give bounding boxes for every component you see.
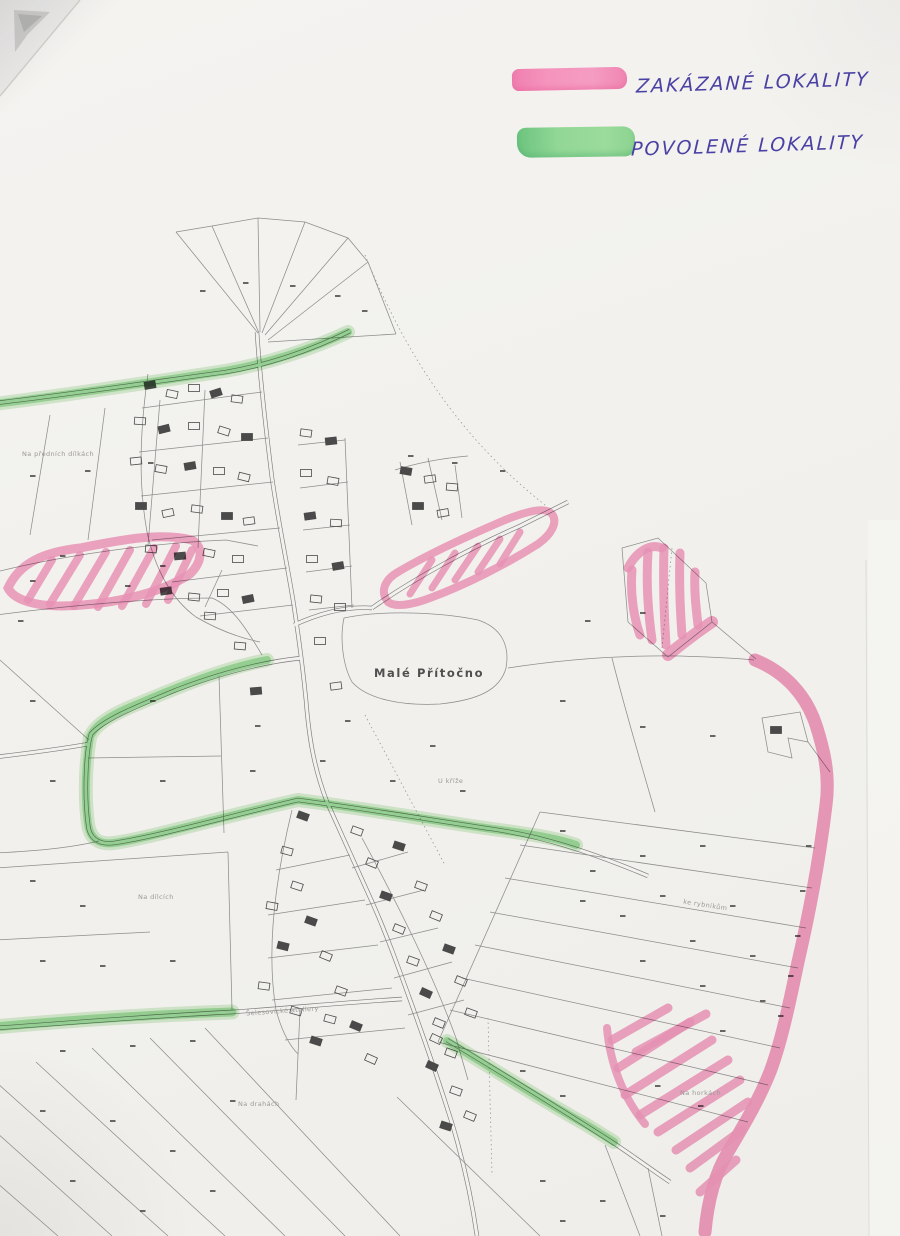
legend-pink-swatch — [512, 67, 627, 91]
field-label-na-prednich: Na předních dílkách — [22, 450, 94, 458]
village-name-label: Malé Přítočno — [374, 666, 484, 680]
pink-highlighter-annotations — [8, 510, 827, 1232]
field-label-na-horkach: Na horkách — [680, 1089, 721, 1097]
parcel-lines — [0, 218, 830, 1236]
field-label-na-dilcich: Na dílcích — [138, 893, 174, 901]
cadastral-map-svg — [0, 0, 900, 1236]
scanned-map-page: ZAKÁZANÉ LOKALITY POVOLENÉ LOKALITY Malé… — [0, 0, 900, 1236]
legend-green-swatch — [517, 126, 635, 158]
field-label-na-drahach: Na drahách — [238, 1100, 280, 1108]
roads-outline — [0, 331, 670, 1236]
roads-inner — [0, 331, 670, 1236]
field-label-u-krize: U kříže — [438, 777, 463, 785]
